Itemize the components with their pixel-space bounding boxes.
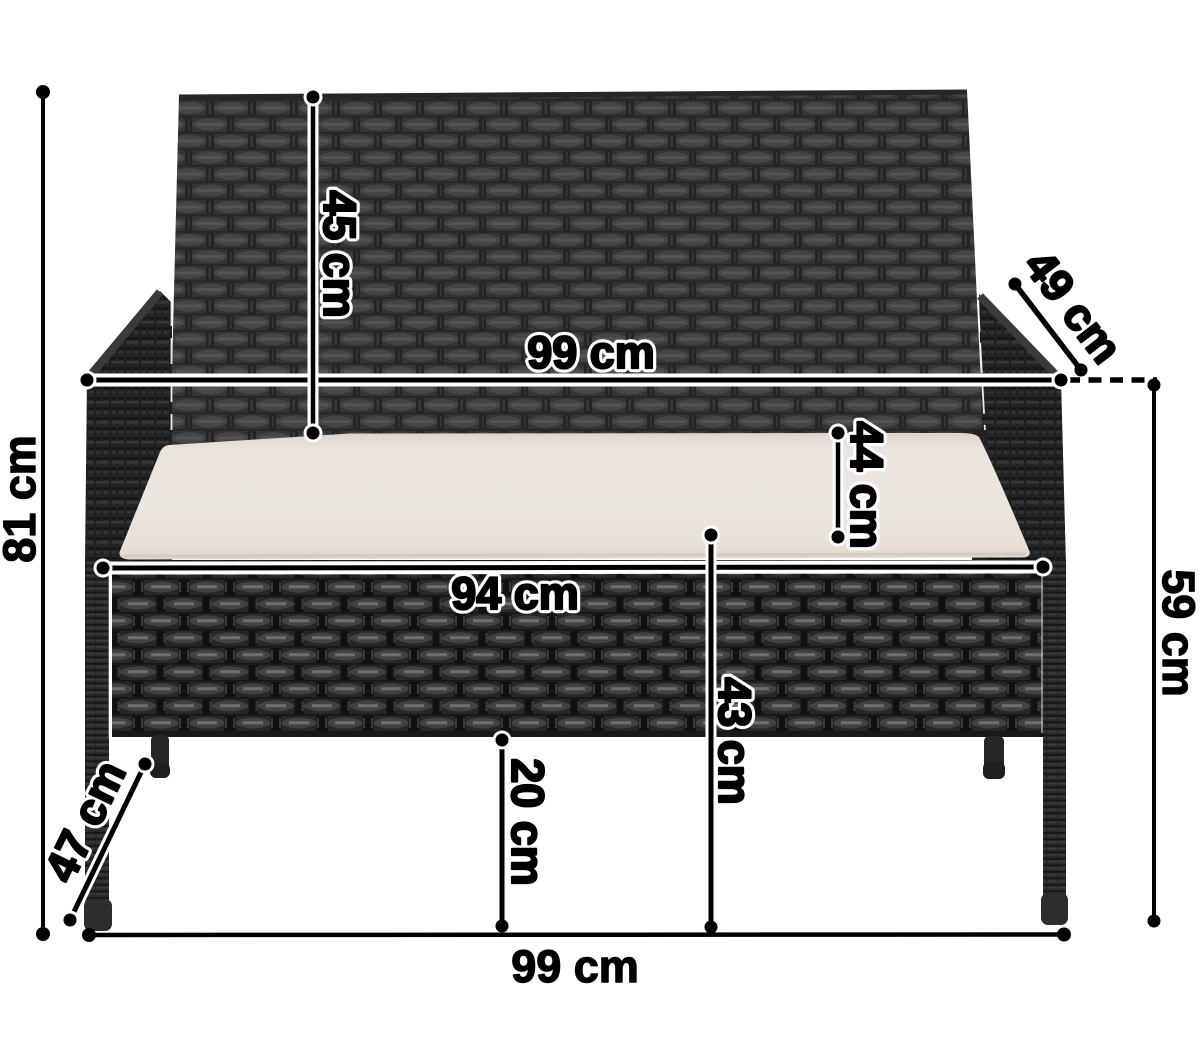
svg-text:99 cm: 99 cm: [527, 327, 655, 378]
svg-text:94 cm: 94 cm: [451, 568, 579, 619]
svg-text:81 cm: 81 cm: [0, 435, 45, 563]
svg-text:44 cm: 44 cm: [841, 421, 892, 549]
svg-text:43 cm: 43 cm: [709, 677, 760, 805]
svg-text:45 cm: 45 cm: [314, 190, 365, 318]
svg-text:20 cm: 20 cm: [502, 758, 553, 886]
svg-text:59 cm: 59 cm: [1153, 569, 1200, 697]
svg-text:99 cm: 99 cm: [511, 941, 639, 992]
